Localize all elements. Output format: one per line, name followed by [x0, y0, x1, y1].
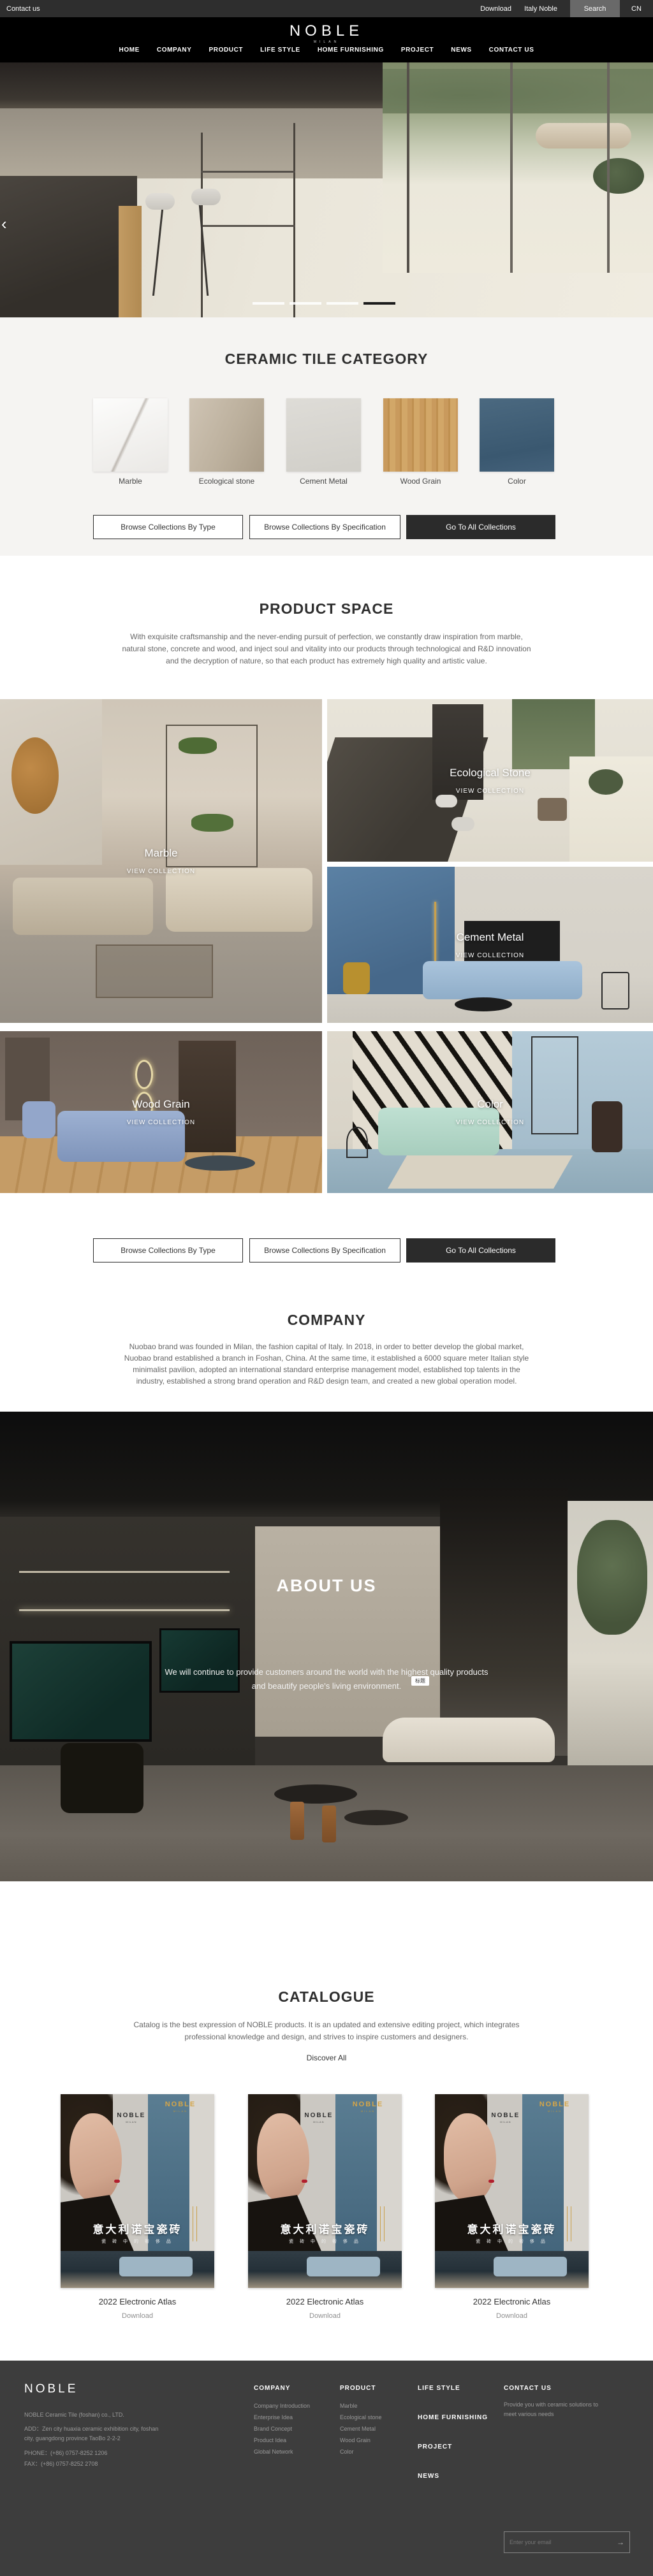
product-space-paragraph-1: With exquisite craftsmanship and the nev…: [0, 631, 653, 643]
nav-news[interactable]: NEWS: [451, 47, 471, 54]
download-link-2[interactable]: Download: [248, 2312, 402, 2320]
space-tile-wood-grain[interactable]: Wood Grain VIEW COLLECTION: [0, 1031, 322, 1193]
category-swatch-color[interactable]: [480, 398, 554, 472]
hero-carousel[interactable]: ‹: [0, 62, 653, 317]
footer-col-company-title[interactable]: COMPANY: [254, 2385, 290, 2392]
about-shelf-glow-1: [19, 1571, 230, 1573]
footer-link-project[interactable]: PROJECT: [418, 2443, 452, 2450]
footer-fax: FAX：(+86) 0757-8252 2708: [24, 2459, 98, 2469]
footer-link-cement-metal[interactable]: Cement Metal: [340, 2423, 376, 2435]
cover-model-lips: [488, 2180, 494, 2183]
company-title: COMPANY: [0, 1312, 653, 1329]
tile-label-wood-grain: Wood Grain VIEW COLLECTION: [0, 1031, 322, 1193]
carousel-dash-1[interactable]: [253, 302, 284, 305]
nav-contact-us[interactable]: CONTACT US: [489, 47, 534, 54]
discover-all-link[interactable]: Discover All: [0, 2053, 653, 2062]
cover-room-sofa: [119, 2257, 193, 2276]
hero-stool-legs-1: [152, 210, 163, 296]
footer-link-brand-concept[interactable]: Brand Concept: [254, 2423, 292, 2435]
download-link-3[interactable]: Download: [435, 2312, 589, 2320]
company-paragraph-3: minimalist pavilion, adopted an internat…: [0, 1364, 653, 1375]
view-collection-link[interactable]: VIEW COLLECTION: [127, 1119, 195, 1126]
footer-link-wood-grain[interactable]: Wood Grain: [340, 2435, 371, 2446]
hero-stone-island: [0, 176, 137, 317]
top-utility-bar: Contact us Download Italy Noble Search C…: [0, 0, 653, 17]
company-paragraph-1: Nuobao brand was founded in Milan, the f…: [0, 1341, 653, 1352]
hero-bush: [593, 158, 644, 194]
chevron-left-icon[interactable]: ‹: [1, 215, 7, 232]
about-shelf-glow-2: [19, 1609, 230, 1611]
cover-model-lips: [302, 2180, 307, 2183]
catalogue-paragraph-1: Catalog is the best expression of NOBLE …: [0, 2019, 653, 2031]
footer-address-1: ADD：Zen city huaxia ceramic exhibition c…: [24, 2424, 158, 2434]
nav-product[interactable]: PRODUCT: [209, 47, 244, 54]
footer-contact-text: Provide you with ceramic solutions to me…: [504, 2400, 599, 2419]
cover-wall-brand-sub: MILAN: [294, 2120, 343, 2124]
view-collection-link[interactable]: VIEW COLLECTION: [456, 788, 524, 795]
cover-title-cn: 意大利诺宝瓷砖: [435, 2220, 589, 2236]
footer-link-color[interactable]: Color: [340, 2446, 354, 2457]
category-swatch-marble[interactable]: [93, 398, 168, 472]
hero-rocks: [536, 123, 631, 148]
category-label-wood-grain: Wood Grain: [383, 477, 458, 486]
category-title: CERAMIC TILE CATEGORY: [0, 351, 653, 368]
language-toggle-cn[interactable]: CN: [620, 0, 653, 17]
company-paragraph-2: Nuobao brand established a branch in Fos…: [0, 1352, 653, 1364]
footer-link-marble[interactable]: Marble: [340, 2400, 358, 2412]
hero-back-wall: [0, 108, 395, 178]
newsletter-email-field-wrap: →: [504, 2531, 630, 2553]
category-swatch-cement-metal[interactable]: [286, 398, 361, 472]
about-right-corridor: [440, 1488, 568, 1756]
cover-brand-gold: NOBLE: [524, 2101, 585, 2108]
cover-room-sofa: [307, 2257, 381, 2276]
space-tile-cement-metal[interactable]: Cement Metal VIEW COLLECTION: [327, 867, 653, 1023]
cover-brand-gold-sub: MILAN: [524, 2109, 585, 2113]
site-header: NOBLE MILAN HOME COMPANY PRODUCT LIFE ST…: [0, 17, 653, 62]
hero-mullion-1: [407, 62, 409, 273]
atlas-label-2: 2022 Electronic Atlas: [248, 2297, 402, 2306]
category-section: CERAMIC TILE CATEGORY Marble Ecological …: [0, 317, 653, 556]
newsletter-email-input[interactable]: [504, 2539, 617, 2545]
footer-col-contact-title[interactable]: CONTACT US: [504, 2385, 552, 2392]
category-label-cement-metal: Cement Metal: [286, 477, 361, 486]
search-button[interactable]: Search: [570, 0, 620, 17]
product-space-paragraph-3: and the decryption of nature, so that ea…: [0, 655, 653, 667]
cover-room-sofa: [494, 2257, 568, 2276]
about-black-armchair: [61, 1743, 143, 1813]
cover-title-cn: 意大利诺宝瓷砖: [61, 2220, 214, 2236]
contact-us-link[interactable]: Contact us: [0, 5, 40, 13]
footer-phone: PHONE：(+86) 0757-8252 1206: [24, 2449, 107, 2458]
carousel-dash-2[interactable]: [290, 302, 321, 305]
nav-project[interactable]: PROJECT: [401, 47, 434, 54]
footer-link-company-introduction[interactable]: Company Introduction: [254, 2400, 310, 2412]
footer-address-2: city, guangdong province TaoBo 2-2-2: [24, 2434, 121, 2443]
footer-link-global-network[interactable]: Global Network: [254, 2446, 293, 2457]
atlas-label-1: 2022 Electronic Atlas: [61, 2297, 214, 2306]
category-swatch-ecological-stone[interactable]: [189, 398, 264, 472]
tile-name: Cement Metal: [457, 931, 524, 944]
title-tooltip-tag: 标题: [411, 1676, 429, 1686]
cover-brand-gold-sub: MILAN: [337, 2109, 399, 2113]
cover-subtitle-cn: 瓷 砖 中 的 奢 侈 品: [61, 2238, 214, 2245]
arrow-right-icon[interactable]: →: [617, 2538, 629, 2547]
about-us-section: ABOUT US We will continue to provide cus…: [0, 1412, 653, 1881]
view-collection-link[interactable]: VIEW COLLECTION: [456, 1119, 524, 1126]
main-nav: HOME COMPANY PRODUCT LIFE STYLE HOME FUR…: [0, 47, 653, 54]
cover-model-face: [70, 2113, 122, 2203]
catalogue-title: CATALOGUE: [0, 1988, 653, 2006]
view-collection-link[interactable]: VIEW COLLECTION: [127, 868, 195, 875]
hero-frame-h1: [201, 171, 295, 173]
carousel-dash-4-active[interactable]: [363, 302, 395, 305]
cover-title-cn: 意大利诺宝瓷砖: [248, 2220, 402, 2236]
about-line-1: We will continue to provide customers ar…: [0, 1665, 653, 1679]
footer-logo: NOBLE: [24, 2382, 78, 2396]
cover-model-face: [257, 2113, 309, 2203]
cover-wall-brand-sub: MILAN: [481, 2120, 530, 2124]
cover-wall-brand: NOBLE: [481, 2112, 530, 2119]
download-link-1[interactable]: Download: [61, 2312, 214, 2320]
about-us-title: ABOUT US: [0, 1576, 653, 1596]
about-copper-stool-2: [322, 1805, 336, 1842]
category-label-ecological-stone: Ecological stone: [189, 477, 264, 486]
nav-home[interactable]: HOME: [119, 47, 140, 54]
page: Contact us Download Italy Noble Search C…: [0, 0, 653, 2576]
space-tile-color[interactable]: Color VIEW COLLECTION: [327, 1031, 653, 1193]
nav-home-furnishing[interactable]: HOME FURNISHING: [318, 47, 384, 54]
browse-by-specification-button[interactable]: Browse Collections By Specification: [249, 515, 400, 539]
tile-label-ecological-stone: Ecological Stone VIEW COLLECTION: [327, 699, 653, 862]
footer-link-ecological-stone[interactable]: Ecological stone: [340, 2412, 382, 2423]
carousel-indicators: [253, 302, 406, 305]
about-center-wall: [255, 1526, 440, 1737]
footer-company-name: NOBLE Ceramic Tile (foshan) co., LTD.: [24, 2410, 124, 2420]
product-space-title: PRODUCT SPACE: [0, 600, 653, 618]
about-copper-stool-1: [290, 1802, 304, 1840]
nav-life-style[interactable]: LIFE STYLE: [260, 47, 300, 54]
hero-frame-h2: [201, 225, 295, 227]
footer: NOBLE NOBLE Ceramic Tile (foshan) co., L…: [0, 2361, 653, 2576]
noble-logo-milan: MILAN: [0, 40, 653, 44]
download-link[interactable]: Download: [480, 5, 511, 13]
go-to-all-collections-button[interactable]: Go To All Collections: [406, 515, 555, 539]
cover-wall-brand: NOBLE: [106, 2112, 156, 2119]
cover-brand-gold-sub: MILAN: [150, 2109, 211, 2113]
footer-link-enterprise-idea[interactable]: Enterprise Idea: [254, 2412, 293, 2423]
cover-brand-gold: NOBLE: [337, 2101, 399, 2108]
hero-mullion-3: [607, 62, 610, 273]
italy-noble-link[interactable]: Italy Noble: [524, 5, 557, 13]
cover-model-face: [444, 2113, 496, 2203]
hero-frame-v2: [293, 123, 295, 317]
catalogue-cover-3[interactable]: NOBLE MILAN NOBLE MILAN 意大利诺宝瓷砖 瓷 砖 中 的 …: [435, 2094, 589, 2288]
cover-wall-brand-sub: MILAN: [106, 2120, 156, 2124]
catalogue-cover-1[interactable]: NOBLE MILAN NOBLE MILAN 意大利诺宝瓷砖 瓷 砖 中 的 …: [61, 2094, 214, 2288]
carousel-dash-3[interactable]: [326, 302, 358, 305]
cover-subtitle-cn: 瓷 砖 中 的 奢 侈 品: [435, 2238, 589, 2245]
cover-subtitle-cn: 瓷 砖 中 的 奢 侈 品: [248, 2238, 402, 2245]
noble-logo[interactable]: NOBLE: [0, 22, 653, 40]
category-label-color: Color: [480, 477, 554, 486]
footer-link-home-furnishing[interactable]: HOME FURNISHING: [418, 2414, 488, 2421]
catalogue-cover-2[interactable]: NOBLE MILAN NOBLE MILAN 意大利诺宝瓷砖 瓷 砖 中 的 …: [248, 2094, 402, 2288]
tile-name: Ecological Stone: [450, 767, 531, 779]
about-round-table-2: [344, 1810, 408, 1825]
hero-stool-seat-2: [191, 189, 221, 205]
go-to-all-collections-button-2[interactable]: Go To All Collections: [406, 1238, 555, 1263]
space-tile-ecological-stone[interactable]: Ecological Stone VIEW COLLECTION: [327, 699, 653, 862]
about-line-2: and beautify people's living environment…: [0, 1679, 653, 1693]
space-tile-marble[interactable]: Marble VIEW COLLECTION: [0, 699, 322, 1023]
hero-mullion-2: [510, 62, 513, 273]
hero-ceiling: [0, 62, 395, 108]
tile-name: Marble: [145, 847, 178, 860]
browse-by-specification-button-2[interactable]: Browse Collections By Specification: [249, 1238, 400, 1263]
category-label-marble: Marble: [93, 477, 168, 486]
browse-by-type-button-2[interactable]: Browse Collections By Type: [93, 1238, 243, 1263]
tile-name: Color: [477, 1098, 503, 1111]
about-white-sofa: [383, 1718, 555, 1762]
atlas-label-3: 2022 Electronic Atlas: [435, 2297, 589, 2306]
cover-wall-brand: NOBLE: [294, 2112, 343, 2119]
footer-link-product-idea[interactable]: Product Idea: [254, 2435, 286, 2446]
footer-link-life-style[interactable]: LIFE STYLE: [418, 2385, 460, 2392]
product-space-paragraph-2: natural stone, concrete and wood, and in…: [0, 643, 653, 655]
tile-name: Wood Grain: [132, 1098, 189, 1111]
tile-label-cement-metal: Cement Metal VIEW COLLECTION: [327, 867, 653, 1023]
browse-by-type-button[interactable]: Browse Collections By Type: [93, 515, 243, 539]
hero-stool-seat-1: [145, 193, 175, 210]
footer-link-news[interactable]: NEWS: [418, 2473, 439, 2480]
footer-col-product-title[interactable]: PRODUCT: [340, 2385, 376, 2392]
nav-company[interactable]: COMPANY: [157, 47, 192, 54]
cover-model-lips: [114, 2180, 120, 2183]
company-paragraph-4: industry, established a strong brand ope…: [0, 1375, 653, 1387]
catalogue-paragraph-2: professional knowledge and design, and s…: [0, 2031, 653, 2043]
hero-wood-panel: [119, 206, 142, 317]
view-collection-link[interactable]: VIEW COLLECTION: [456, 952, 524, 959]
about-round-table-1: [274, 1784, 357, 1804]
tile-label-color: Color VIEW COLLECTION: [327, 1031, 653, 1193]
category-swatch-wood-grain[interactable]: [383, 398, 458, 472]
hero-hedge: [383, 69, 653, 113]
cover-brand-gold: NOBLE: [150, 2101, 211, 2108]
tile-label-marble: Marble VIEW COLLECTION: [0, 699, 322, 1023]
